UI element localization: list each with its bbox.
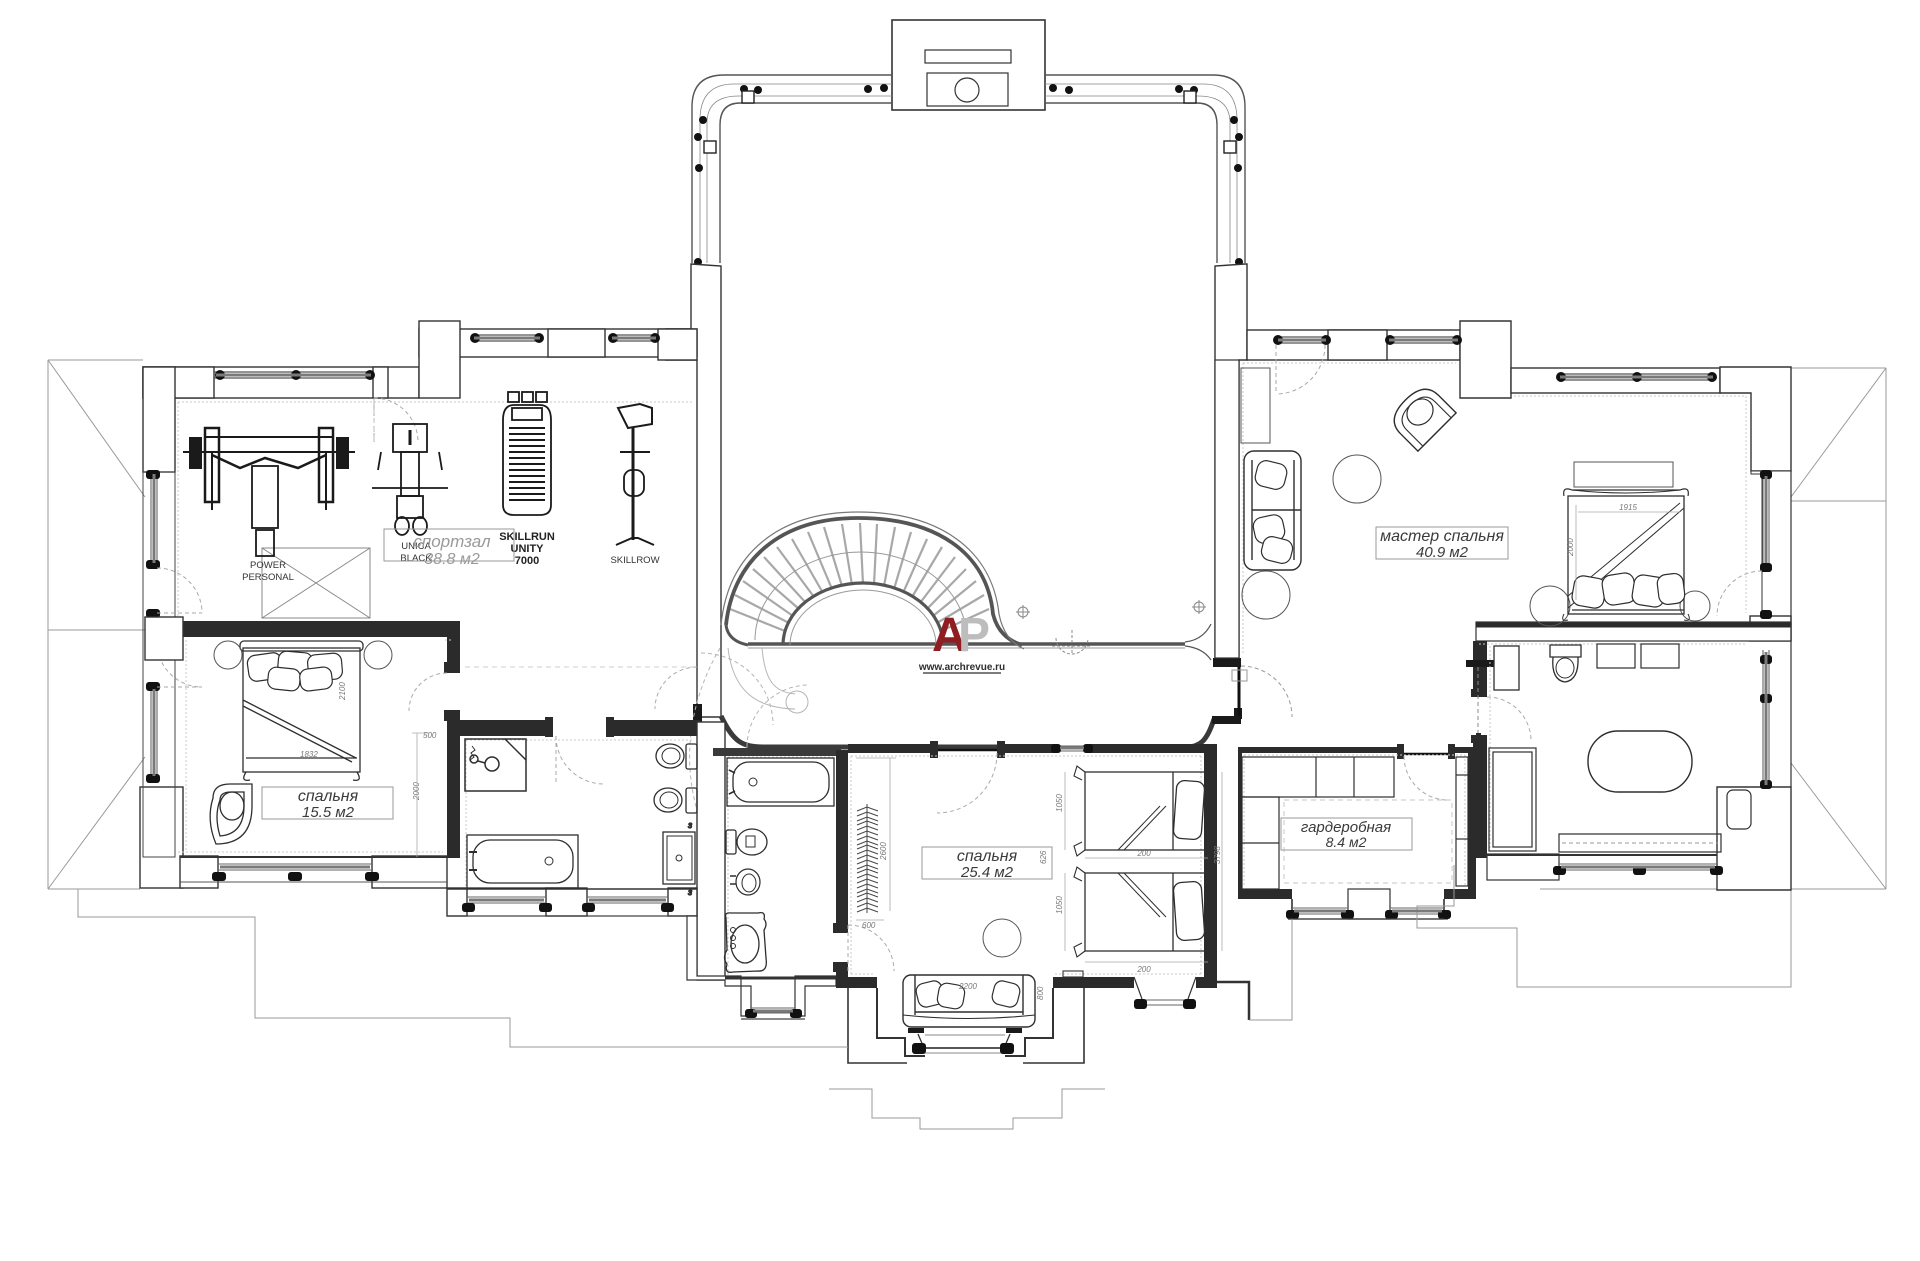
- svg-text:600: 600: [862, 921, 876, 930]
- svg-text:3798: 3798: [1213, 846, 1222, 864]
- svg-text:UNITY: UNITY: [511, 543, 545, 555]
- svg-text:800: 800: [1036, 986, 1045, 1000]
- svg-text:200: 200: [1136, 965, 1151, 974]
- svg-text:PERSONAL: PERSONAL: [242, 572, 294, 583]
- svg-text:2000: 2000: [412, 782, 421, 801]
- svg-text:40.9 м2: 40.9 м2: [1416, 544, 1469, 561]
- svg-text:спальня: спальня: [298, 788, 359, 805]
- svg-text:8.4 м2: 8.4 м2: [1326, 834, 1367, 850]
- svg-text:500: 500: [423, 731, 437, 740]
- svg-text:7000: 7000: [515, 555, 539, 567]
- svg-text:www.archrevue.ru: www.archrevue.ru: [918, 662, 1005, 673]
- svg-text:1832: 1832: [300, 750, 318, 759]
- svg-text:2100: 2100: [338, 682, 347, 701]
- svg-text:P: P: [958, 609, 990, 662]
- svg-text:спальня: спальня: [957, 848, 1018, 865]
- svg-text:626: 626: [1039, 850, 1048, 864]
- svg-text:POWER: POWER: [250, 560, 286, 571]
- svg-text:3: 3: [688, 823, 692, 830]
- svg-text:2000: 2000: [1566, 538, 1575, 557]
- svg-text:2600: 2600: [879, 842, 888, 861]
- svg-text:2200: 2200: [958, 982, 977, 991]
- svg-text:спортзал: спортзал: [413, 532, 491, 551]
- svg-text:200: 200: [1136, 849, 1151, 858]
- svg-text:15.5 м2: 15.5 м2: [302, 804, 355, 821]
- svg-text:1050: 1050: [1055, 896, 1064, 914]
- svg-text:1050: 1050: [1055, 794, 1064, 812]
- svg-text:мастер спальня: мастер спальня: [1380, 528, 1504, 545]
- svg-text:SKILLRUN: SKILLRUN: [499, 531, 555, 543]
- svg-text:3: 3: [688, 890, 692, 897]
- svg-text:SKILLROW: SKILLROW: [610, 555, 659, 566]
- svg-text:25.4 м2: 25.4 м2: [960, 864, 1014, 881]
- svg-text:1915: 1915: [1619, 503, 1637, 512]
- svg-text:38.8 м2: 38.8 м2: [424, 551, 480, 568]
